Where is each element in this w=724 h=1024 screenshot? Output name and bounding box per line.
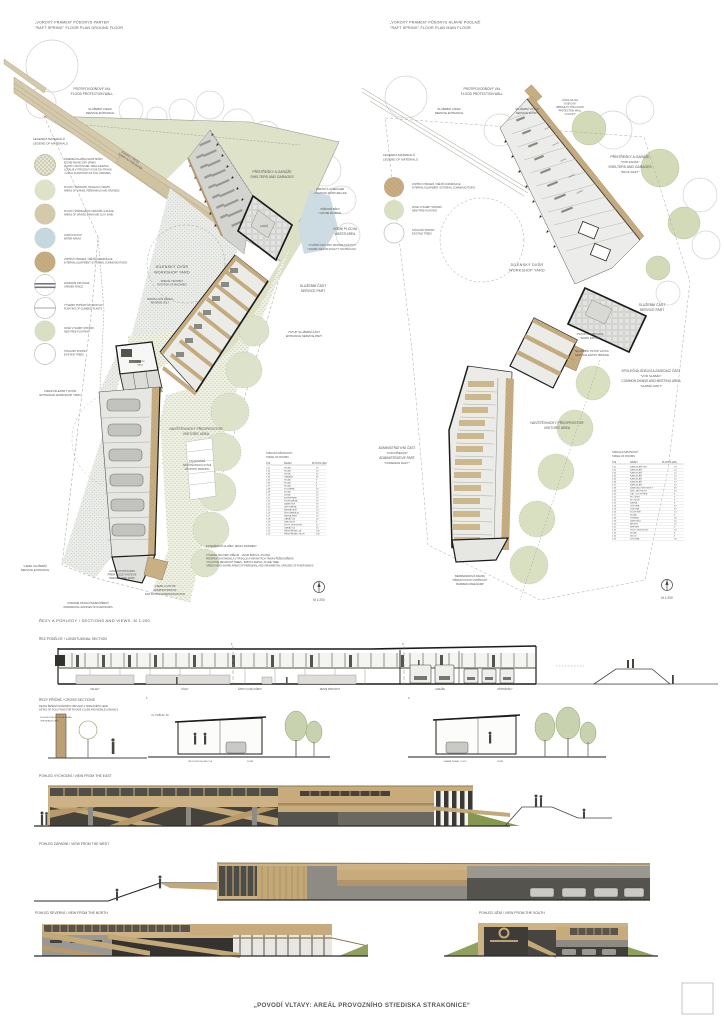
svg-text:SERVICE PART: SERVICE PART bbox=[301, 289, 326, 293]
svg-text:INTERNAL EQUIPMENT, EXTERNAL C: INTERNAL EQUIPMENT, EXTERNAL COMMUNICATI… bbox=[412, 187, 475, 190]
svg-text:ADMINISTRATIVNÍ ČÁST: ADMINISTRATIVNÍ ČÁST bbox=[379, 445, 416, 450]
svg-text:SKLAD: SKLAD bbox=[284, 482, 292, 485]
svg-text:"RAFT SPRING" FLOOR PLAN GROUN: "RAFT SPRING" FLOOR PLAN GROUND FLOOR bbox=[35, 26, 123, 30]
svg-text:VODNÍ PLOCHA: VODNÍ PLOCHA bbox=[333, 227, 358, 231]
svg-text:/ LOCAL PLANTATION OF TALL GRA: / LOCAL PLANTATION OF TALL GRASSES bbox=[64, 172, 111, 175]
svg-text:KANCELÁŘ VED.: KANCELÁŘ VED. bbox=[630, 466, 648, 469]
svg-text:M 1:200: M 1:200 bbox=[661, 596, 673, 600]
svg-text:ENTRANCE WORKSHOP YARD: ENTRANCE WORKSHOP YARD bbox=[39, 393, 80, 397]
svg-text:COMMON DINING AND MEETING AREA: COMMON DINING AND MEETING AREA bbox=[621, 379, 681, 383]
svg-text:DÍLENSKÝ DVŮR: DÍLENSKÝ DVŮR bbox=[511, 262, 544, 267]
svg-text:HALA: HALA bbox=[137, 364, 143, 367]
svg-text:TECH. MÍSTNOST: TECH. MÍSTNOST bbox=[630, 529, 649, 532]
svg-text:„POVODÍ VLTAVY: AREÁL PROVOZNÍ: „POVODÍ VLTAVY: AREÁL PROVOZNÍHO STřEDIS… bbox=[254, 1001, 471, 1009]
svg-text:M 1:200: M 1:200 bbox=[313, 598, 325, 602]
svg-text:EXISTING TREES: EXISTING TREES bbox=[412, 233, 432, 236]
svg-text:SHELTERS AND GARAGES: SHELTERS AND GARAGES bbox=[608, 165, 652, 169]
svg-text:TERASA: TERASA bbox=[630, 517, 639, 520]
svg-text:TABLE OF ROOMS: TABLE OF ROOMS bbox=[266, 455, 289, 459]
svg-text:VYUŽITÉ VODY PRO TECHNOLOGII M: VYUŽITÉ VODY PRO TECHNOLOGII MYTÍ bbox=[309, 244, 356, 247]
svg-text:ŠATNY A UMÝVÁRNY: ŠATNY A UMÝVÁRNY bbox=[238, 688, 262, 691]
svg-text:"VOR PŘEDÁK": "VOR PŘEDÁK" bbox=[386, 450, 408, 455]
svg-text:SERVICE ENTRANCE: SERVICE ENTRANCE bbox=[86, 111, 115, 115]
svg-text:SKLAD: SKLAD bbox=[630, 532, 638, 535]
svg-text:LEGENDA MATERIÁLŮ: LEGENDA MATERIÁLŮ bbox=[383, 152, 415, 157]
svg-text:ŘEZ PODÉLNÝ / LONGITUDINAL SEC: ŘEZ PODÉLNÝ / LONGITUDINAL SECTION bbox=[39, 636, 107, 641]
svg-text:OHRANNÉ TRAVNÍ OSÁZENÍ BŘEHŮ: OHRANNÉ TRAVNÍ OSÁZENÍ BŘEHŮ bbox=[67, 602, 109, 605]
svg-text:WATER AREA: WATER AREA bbox=[335, 232, 356, 236]
svg-text:EXTERIÉROVÁ DLAŽBA / DEKKO PAV: EXTERIÉROVÁ DLAŽBA / DEKKO PAVEMENT bbox=[206, 545, 257, 548]
svg-text:DÍLENSKÝ DVŮR: DÍLENSKÝ DVŮR bbox=[156, 264, 189, 269]
svg-text:KLEMPÍRNA: KLEMPÍRNA bbox=[284, 497, 297, 500]
svg-text:VISITORS' AREA: VISITORS' AREA bbox=[183, 432, 210, 436]
svg-text:CHODBA: CHODBA bbox=[630, 505, 640, 508]
svg-text:"RAFT SPRING" FLOOR PLAN MAIN: "RAFT SPRING" FLOOR PLAN MAIN FLOOR bbox=[390, 26, 471, 30]
svg-text:KANCELÁŘ: KANCELÁŘ bbox=[630, 475, 642, 478]
svg-text:SERVICE PART: SERVICE PART bbox=[640, 308, 665, 312]
svg-text:SERVICE ENTRY BRIDGE: SERVICE ENTRY BRIDGE bbox=[575, 353, 609, 357]
svg-text:PLANTING OF CLIMBING PLANTS: PLANTING OF CLIMBING PLANTS bbox=[64, 308, 103, 311]
svg-text:POHLEDOVÁ SKLADBA FASÁD: POHLEDOVÁ SKLADBA FASÁD bbox=[40, 716, 72, 719]
svg-text:PŘÍSTŘEŠEK TECH.: PŘÍSTŘEŠEK TECH. bbox=[284, 533, 305, 536]
svg-text:ŠATNA MUŽI: ŠATNA MUŽI bbox=[284, 509, 297, 512]
svg-text:DEN. MÍSTNOST: DEN. MÍSTNOST bbox=[630, 490, 648, 493]
svg-text:SKLAD: SKLAD bbox=[284, 485, 292, 488]
svg-text:NÁZEV: NÁZEV bbox=[630, 461, 638, 464]
svg-text:PROVOZNÍ SKLADY 1A: PROVOZNÍ SKLADY 1A bbox=[188, 760, 212, 763]
svg-text:SERVICE ENTRY: SERVICE ENTRY bbox=[516, 111, 539, 115]
svg-text:FLOOD PROTECTION WALL: FLOOD PROTECTION WALL bbox=[461, 92, 503, 96]
svg-text:DENNÍ MÍSTNOST: DENNÍ MÍSTNOST bbox=[320, 688, 341, 691]
svg-text:TRUHLÁRNA: TRUHLÁRNA bbox=[284, 500, 298, 503]
svg-text:DÍLNA: DÍLNA bbox=[284, 473, 291, 476]
svg-text:GARÁŽ: GARÁŽ bbox=[260, 225, 269, 228]
svg-text:ARCHIV: ARCHIV bbox=[630, 523, 639, 526]
svg-text:KUCHYNĚ: KUCHYNĚ bbox=[630, 511, 641, 514]
svg-text:ŘEZY PŘÍČNÉ / CROSS SECTIONS: ŘEZY PŘÍČNÉ / CROSS SECTIONS bbox=[39, 697, 96, 702]
svg-text:GARÁŽ 2A: GARÁŽ 2A bbox=[284, 518, 295, 521]
svg-text:ENTRANCE ADMINISTRATION: ENTRANCE ADMINISTRATION bbox=[145, 592, 185, 596]
svg-text:LEGEND OF MATERIALS: LEGEND OF MATERIALS bbox=[33, 142, 68, 146]
svg-text:REVERSE HOLY: REVERSE HOLY bbox=[151, 302, 170, 305]
svg-text:VISITORS' PARKING: VISITORS' PARKING bbox=[185, 467, 210, 471]
svg-text:+ PLANTING MOISTURE-LIKE: + PLANTING MOISTURE-LIKE bbox=[313, 192, 347, 195]
svg-text:PŘÍSTŘEŠKY: PŘÍSTŘEŠKY bbox=[497, 688, 513, 691]
svg-text:PROTIPOVODŇOVÝ VAL: PROTIPOVODŇOVÝ VAL bbox=[464, 87, 501, 91]
svg-text:TABULKA MÍSTNOSTÍ: TABULKA MÍSTNOSTÍ bbox=[612, 450, 639, 454]
svg-text:NÁZEV: NÁZEV bbox=[284, 462, 292, 465]
svg-text:SKLAD: SKLAD bbox=[284, 479, 292, 482]
svg-text:ROTATION OF MACHINES: ROTATION OF MACHINES bbox=[157, 284, 187, 287]
svg-text:SHELTERS AND GARAGES: SHELTERS AND GARAGES bbox=[250, 175, 294, 179]
svg-text:VSTUPNÍ: VSTUPNÍ bbox=[135, 360, 145, 363]
svg-text:DVŮR: DVŮR bbox=[497, 760, 504, 763]
svg-text:ČAJ. KUCHYŇKA: ČAJ. KUCHYŇKA bbox=[630, 493, 648, 496]
svg-text:GARÁŽ SPRÁV. VOZU: GARÁŽ SPRÁV. VOZU bbox=[444, 760, 467, 763]
svg-text:VISITORS' AREA: VISITORS' AREA bbox=[544, 426, 571, 430]
svg-text:SLUŽEBNÍ ČÁST: SLUŽEBNÍ ČÁST bbox=[300, 283, 327, 288]
svg-text:UMÝVÁRNA M.: UMÝVÁRNA M. bbox=[284, 512, 300, 515]
svg-text:WORKSHOP YARD: WORKSHOP YARD bbox=[154, 271, 190, 275]
svg-text:LEGEND OF MATERIALS: LEGEND OF MATERIALS bbox=[383, 158, 418, 162]
svg-text:SKLAD: SKLAD bbox=[284, 467, 292, 470]
svg-text:KOLÁRNA: KOLÁRNA bbox=[284, 488, 295, 491]
svg-text:BARRIER-FREE RAMP: BARRIER-FREE RAMP bbox=[456, 582, 484, 586]
svg-text:DÍLNA: DÍLNA bbox=[284, 494, 291, 497]
svg-text:PŘÍSTŘEŠKY A GARÁŽE: PŘÍSTŘEŠKY A GARÁŽE bbox=[252, 169, 292, 174]
svg-text:"FOREMAN RAFT": "FOREMAN RAFT" bbox=[384, 461, 410, 465]
svg-text:JÍDELNA: JÍDELNA bbox=[630, 508, 640, 511]
svg-text:Č.M: Č.M bbox=[266, 462, 270, 465]
svg-text:VRÁTNICE: VRÁTNICE bbox=[284, 521, 296, 524]
svg-text:NÁVŠTĚVNICKÝ PŘEDPROSTOR: NÁVŠTĚVNICKÝ PŘEDPROSTOR bbox=[169, 426, 223, 431]
svg-text:WATER AREAS: WATER AREAS bbox=[64, 238, 81, 241]
svg-text:ENTRANCE SERVICE PART: ENTRANCE SERVICE PART bbox=[286, 334, 323, 338]
svg-text:AREAS OF LAWNS, PERENNIALS AND: AREAS OF LAWNS, PERENNIALS AND GRASSES bbox=[64, 190, 120, 193]
svg-text:NEW TREE PLANTING: NEW TREE PLANTING bbox=[412, 210, 437, 213]
svg-text:SKLAD: SKLAD bbox=[284, 491, 292, 494]
svg-text:„VOROVÝ PRAMEN“ PŮDORYS HLAVNÍ: „VOROVÝ PRAMEN“ PŮDORYS HLAVNÍ PODLAŽÍ bbox=[390, 20, 481, 25]
svg-text:DVŮR: DVŮR bbox=[247, 760, 254, 763]
svg-text:ZASEDACÍ MÍSTNOST: ZASEDACÍ MÍSTNOST bbox=[630, 487, 654, 490]
svg-text:DÍLNY: DÍLNY bbox=[181, 688, 188, 691]
svg-text:ŠATNA: ŠATNA bbox=[630, 502, 638, 505]
svg-text:"VOR SLABÁK": "VOR SLABÁK" bbox=[640, 374, 661, 378]
svg-text:SKLAD: SKLAD bbox=[284, 470, 292, 473]
svg-text:POHLED SEVERNÍ / VIEW FROM THE: POHLED SEVERNÍ / VIEW FROM THE NORTH bbox=[35, 911, 108, 915]
svg-text:KANCELÁŘ: KANCELÁŘ bbox=[630, 478, 642, 481]
svg-text:CHODBA: CHODBA bbox=[630, 538, 640, 541]
svg-text:AREAS OF GRAVEL LAWN AND CLAY: AREAS OF GRAVEL LAWN AND CLAY SAND bbox=[64, 214, 114, 217]
svg-text:NEW TREE PLANTING: NEW TREE PLANTING bbox=[64, 331, 89, 334]
svg-text:WC ŽENY: WC ŽENY bbox=[630, 496, 641, 499]
svg-text:POHLED VÝCHODNÍ / VIEW FROM TH: POHLED VÝCHODNÍ / VIEW FROM THE EAST bbox=[39, 774, 112, 778]
svg-text:/ WATER USE FOR FACILITY TECHN: / WATER USE FOR FACILITY TECHNOLOGY bbox=[307, 248, 357, 251]
svg-text:"BACK RAFT": "BACK RAFT" bbox=[621, 170, 640, 174]
svg-text:ZASEDACÍ: ZASEDACÍ bbox=[630, 520, 641, 523]
svg-text:Č.M: Č.M bbox=[612, 461, 616, 464]
svg-text:KANCELÁŘ: KANCELÁŘ bbox=[630, 481, 642, 484]
svg-text:ÚKLID: ÚKLID bbox=[630, 535, 637, 538]
svg-text:DETAIL OF SOLUTIONS FOR FACADE: DETAIL OF SOLUTIONS FOR FACADE CLADS AND… bbox=[39, 709, 118, 712]
svg-text:GARÁŽE: GARÁŽE bbox=[284, 476, 294, 479]
svg-text:ADMINISTRATIVE PART: ADMINISTRATIVE PART bbox=[379, 456, 415, 460]
svg-text:PLOCHA (M2): PLOCHA (M2) bbox=[312, 462, 327, 465]
svg-text:KANCELÁŘ: KANCELÁŘ bbox=[630, 472, 642, 475]
svg-text:NÁVŠTĚVNICKÝ PŘEDPROSTOR: NÁVŠTĚVNICKÝ PŘEDPROSTOR bbox=[530, 420, 584, 425]
svg-text:PROTIPOVODŇOVÝ VAL: PROTIPOVODŇOVÝ VAL bbox=[74, 87, 111, 91]
svg-text:VL. POŽLAV. SV: VL. POŽLAV. SV bbox=[151, 714, 169, 717]
svg-text:ZÁMEČNÍK: ZÁMEČNÍK bbox=[284, 503, 296, 506]
svg-text:SERVICE ENTRANCE: SERVICE ENTRANCE bbox=[21, 568, 50, 572]
svg-text:PŘÍSTŘEŠKY A GARÁŽE: PŘÍSTŘEŠKY A GARÁŽE bbox=[610, 154, 650, 159]
svg-text:"SLABÁK RAFT": "SLABÁK RAFT" bbox=[640, 384, 662, 388]
svg-text:WC MUŽI: WC MUŽI bbox=[630, 499, 640, 502]
svg-text:GARÁŽ 1A: GARÁŽ 1A bbox=[284, 527, 295, 530]
svg-text:WORKSHOP YARD: WORKSHOP YARD bbox=[509, 269, 545, 273]
svg-text:EXISTING TREES: EXISTING TREES bbox=[64, 354, 84, 357]
svg-text:ŠATNA ŽENY: ŠATNA ŽENY bbox=[284, 515, 298, 518]
svg-text:BARRIER-FREE RAMP: BARRIER-FREE RAMP bbox=[109, 577, 135, 580]
svg-text:TABLE OF ROOMS: TABLE OF ROOMS bbox=[612, 454, 635, 458]
svg-text:SKLADY: SKLADY bbox=[90, 688, 100, 691]
svg-text:SLUŽEBNÍ ČÁST: SLUŽEBNÍ ČÁST bbox=[639, 302, 666, 307]
svg-text:TECH. MÍSTNOST: TECH. MÍSTNOST bbox=[284, 524, 303, 527]
svg-text:GREEN HEAD-SHORE AREAS OF PERE: GREEN HEAD-SHORE AREAS OF PERENNIAL AND … bbox=[206, 565, 314, 568]
svg-text:GARÁŽE: GARÁŽE bbox=[435, 688, 445, 691]
svg-text:"LOCUST": "LOCUST" bbox=[564, 113, 576, 116]
svg-text:PŘÍSTŘEŠEK 2A: PŘÍSTŘEŠEK 2A bbox=[284, 530, 302, 533]
svg-text:PŘÍRODNÍ BŘEH: PŘÍRODNÍ BŘEH bbox=[321, 208, 340, 211]
svg-text:"VOR ZADÁK": "VOR ZADÁK" bbox=[620, 160, 639, 164]
svg-text:/ NATURE MATERIAL: / NATURE MATERIAL bbox=[318, 212, 342, 215]
svg-text:SERVICE ENTRANCE: SERVICE ENTRANCE bbox=[435, 111, 464, 115]
svg-text:VERTIKÁLNÍ LATĚ: VERTIKÁLNÍ LATĚ bbox=[40, 720, 59, 723]
svg-text:GARDEN FENCE: GARDEN FENCE bbox=[64, 286, 83, 289]
svg-text:FLOOD PROTECTION WALL: FLOOD PROTECTION WALL bbox=[71, 92, 113, 96]
svg-text:SPOLEČNÁ JÍDELNÍ A ZASEDACÍ ČÁ: SPOLEČNÁ JÍDELNÍ A ZASEDACÍ ČÁST bbox=[622, 368, 681, 373]
svg-text:VZROSTLÁ OLŠE/ALDER: VZROSTLÁ OLŠE/ALDER bbox=[316, 188, 345, 191]
svg-text:ORNAMENTAL GRASSES OF RIVER BA: ORNAMENTAL GRASSES OF RIVER BANKS bbox=[63, 606, 113, 609]
svg-text:UMÝVÁRNA: UMÝVÁRNA bbox=[284, 506, 297, 509]
svg-text:KANCELÁŘ: KANCELÁŘ bbox=[630, 484, 642, 487]
svg-text:INTERNAL EQUIPMENT, EXTERNAL C: INTERNAL EQUIPMENT, EXTERNAL COMMUNICATI… bbox=[64, 262, 127, 265]
svg-text:PLOCHA (M2): PLOCHA (M2) bbox=[662, 461, 677, 464]
svg-text:„VOROVÝ PRAMEN“ PŮDORYS PARTER: „VOROVÝ PRAMEN“ PŮDORYS PARTER bbox=[35, 20, 109, 25]
svg-text:SKLAD: SKLAD bbox=[630, 514, 638, 517]
svg-text:TABULKA MÍSTNOSTÍ: TABULKA MÍSTNOSTÍ bbox=[266, 451, 293, 455]
svg-text:POHLED JIŽNÍ / VIEW FROM THE S: POHLED JIŽNÍ / VIEW FROM THE SOUTH bbox=[479, 910, 545, 915]
svg-text:LEGENDA MATERIÁLŮ: LEGENDA MATERIÁLŮ bbox=[33, 136, 65, 141]
svg-text:ŘEZY A POHLEDY / SECTIONS AND: ŘEZY A POHLEDY / SECTIONS AND VIEWS, M 1… bbox=[39, 618, 151, 623]
svg-text:WORK ENTRY: WORK ENTRY bbox=[581, 336, 600, 340]
svg-text:POHLED ZÁPADNÍ / VIEW FROM THE: POHLED ZÁPADNÍ / VIEW FROM THE WEST bbox=[39, 842, 109, 846]
svg-text:KANCELÁŘ: KANCELÁŘ bbox=[630, 469, 642, 472]
